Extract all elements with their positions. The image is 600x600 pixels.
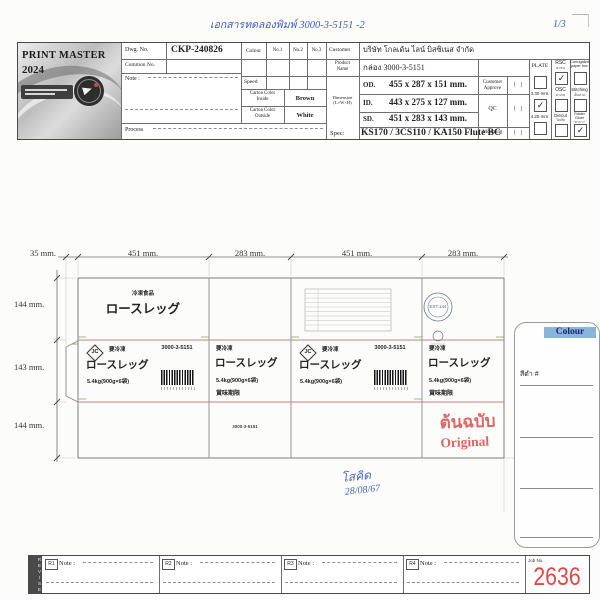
expiry-label: 賞味期限	[216, 391, 240, 398]
revision-tag: R4	[406, 559, 419, 570]
est-stamp-text: EST.144	[424, 304, 452, 309]
revision-tag: R1	[45, 559, 58, 570]
net-weight: 5.4kg(900g×6袋)	[300, 379, 342, 385]
keep-frozen-label: 要冷凍	[322, 347, 339, 353]
dim-row3-height: 144 mm.	[14, 421, 44, 431]
dim-row2-height: 143 mm.	[14, 363, 44, 373]
revision-note-line	[83, 562, 153, 563]
revision-tag: R3	[284, 559, 297, 570]
barcode-digits	[161, 387, 195, 390]
dim-row1-height: 144 mm.	[14, 300, 44, 310]
dim-panel4-width: 283 mm.	[432, 249, 494, 259]
bottom-panel-code: 3000-3-5151	[205, 424, 285, 429]
revision-note-line	[200, 562, 275, 563]
revision-note-label: Note :	[176, 560, 192, 567]
net-weight: 5.4kg(900g×6袋)	[87, 379, 129, 385]
signature-block: โสคิด 28/08/67	[341, 468, 381, 498]
product-name-jp: ロースレッグ	[215, 357, 277, 369]
jc-logo-text: JC	[301, 349, 315, 355]
revision-note-line	[285, 582, 397, 583]
colour-box-title: Colour	[544, 327, 596, 338]
revision-note-label: Note :	[420, 560, 436, 567]
job-no-value: 2636	[532, 563, 583, 592]
frozen-food-label: 冷凍食品	[88, 291, 198, 297]
product-name-jp: ロースレッグ	[299, 359, 361, 371]
product-name-jp-large: ロースレッグ	[83, 302, 203, 316]
revision-note-line	[407, 582, 519, 583]
product-name-jp: ロースレッグ	[86, 359, 148, 371]
keep-frozen-label: 要冷凍	[429, 346, 446, 352]
colour-box: Colour สีดำ #	[514, 322, 600, 548]
dim-panel2-width: 283 mm.	[219, 249, 281, 259]
item-code: 3000-3-5151	[148, 345, 206, 351]
jc-logo-text: JC	[88, 349, 102, 355]
item-code: 3000-3-5151	[361, 345, 419, 351]
revision-tag: R2	[162, 559, 175, 570]
revision-note-line	[322, 562, 397, 563]
original-stamp: ต้นฉบับ Original	[439, 411, 516, 451]
barcode	[374, 370, 408, 385]
keep-frozen-label: 要冷凍	[216, 346, 233, 352]
expiry-label: 賞味期限	[429, 391, 453, 398]
barcode	[161, 370, 195, 385]
revise-strip: REVISE R1 Note : R2 Note : R3 Note : R4 …	[28, 555, 590, 594]
revision-note-line	[444, 562, 519, 563]
dim-flap-width: 35 mm.	[22, 249, 64, 259]
net-weight: 5.4kg(900g×6袋)	[216, 378, 258, 384]
original-stamp-eng: Original	[440, 432, 516, 450]
dieline-linework	[0, 0, 600, 600]
original-stamp-thai: ต้นฉบับ	[439, 411, 516, 433]
product-name-jp: ロースレッグ	[428, 357, 490, 369]
revision-note-line	[46, 582, 153, 583]
colour-swatch-line	[520, 437, 593, 438]
dim-panel3-width: 451 mm.	[326, 249, 388, 259]
print-master-sheet: เอกสารทดลองพิมพ์ 3000-3-5151 -2 1/3 PRIN…	[0, 0, 600, 600]
dim-panel1-width: 451 mm.	[113, 249, 173, 259]
colour-swatch-label: สีดำ #	[520, 371, 539, 379]
net-weight: 5.4kg(900g×6袋)	[429, 378, 471, 384]
revision-note-label: Note :	[59, 560, 75, 567]
colour-swatch-line	[520, 537, 593, 538]
keep-frozen-label: 要冷凍	[109, 347, 126, 353]
revision-note-line	[163, 582, 275, 583]
colour-swatch-line	[520, 488, 593, 489]
barcode-digits	[374, 387, 408, 390]
revise-side-label: REVISE	[29, 556, 42, 593]
colour-swatch-line	[520, 385, 593, 386]
revision-note-label: Note :	[298, 560, 314, 567]
revise-side-text: REVISE	[29, 557, 42, 592]
